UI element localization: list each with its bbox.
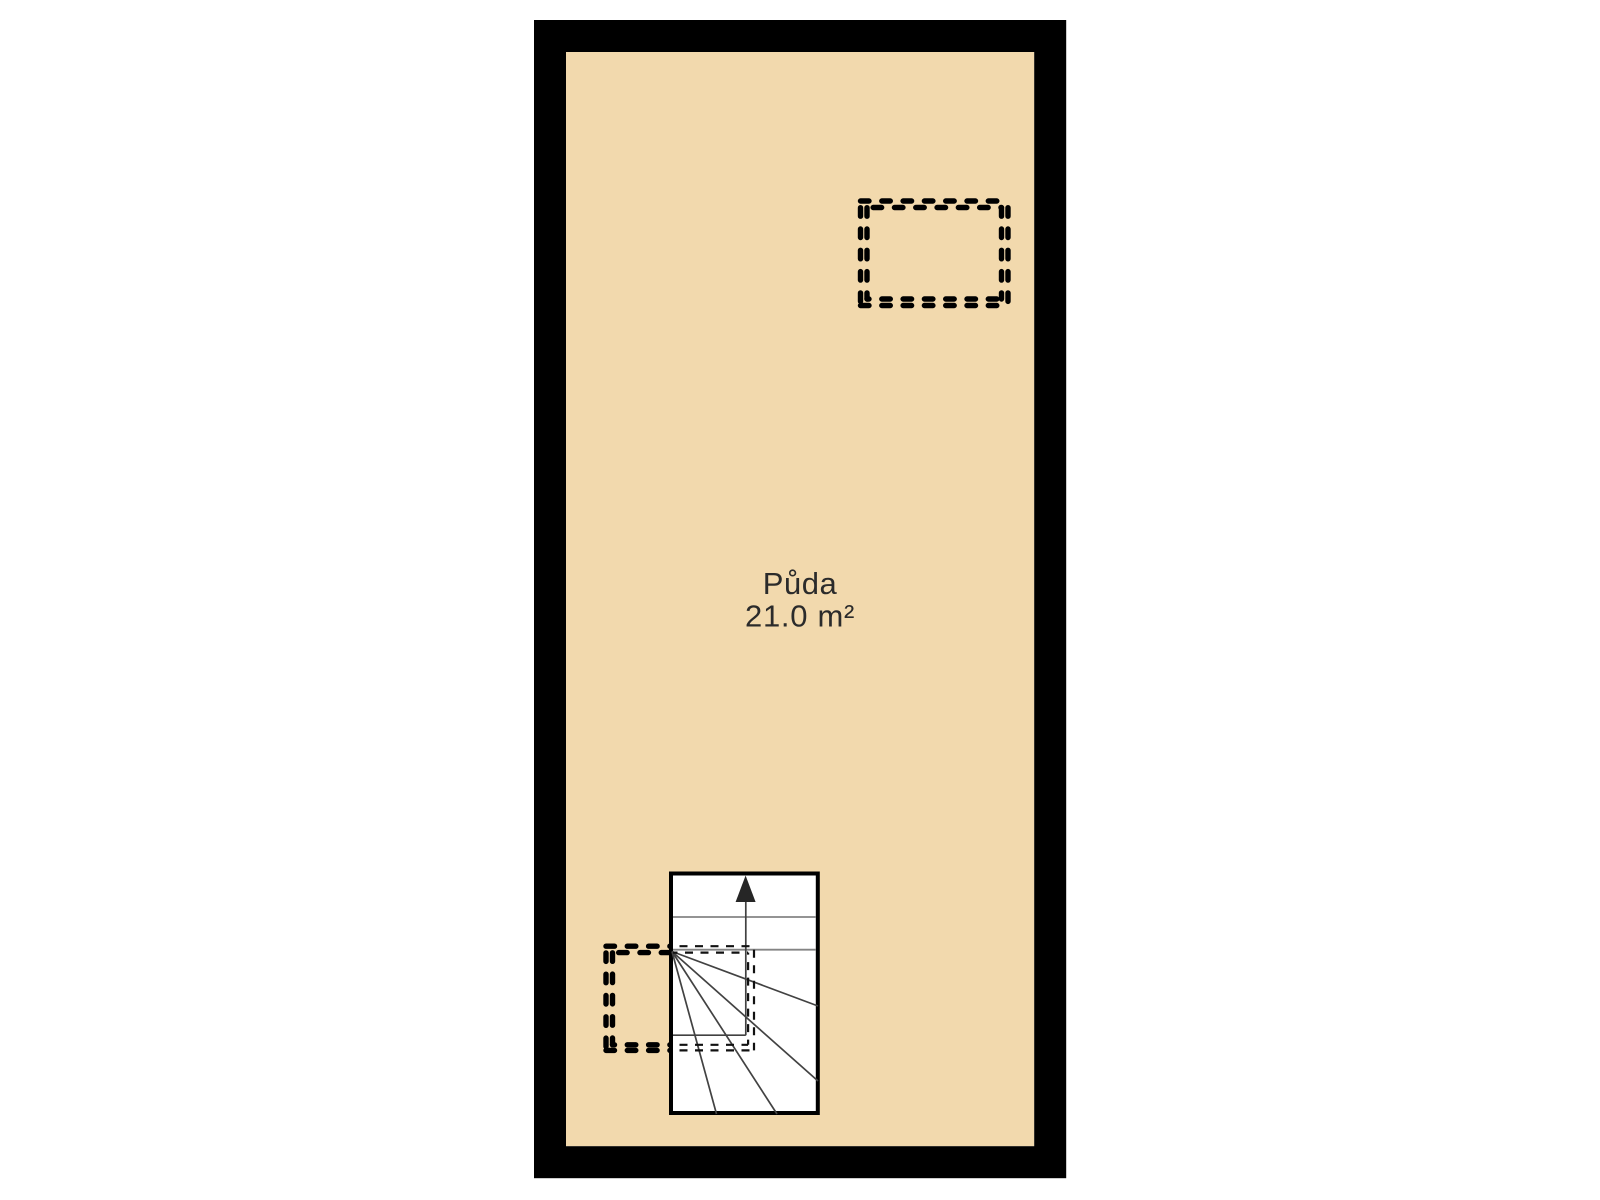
svg-text:Půda: Půda — [763, 566, 838, 601]
svg-text:21.0 m²: 21.0 m² — [745, 599, 855, 634]
